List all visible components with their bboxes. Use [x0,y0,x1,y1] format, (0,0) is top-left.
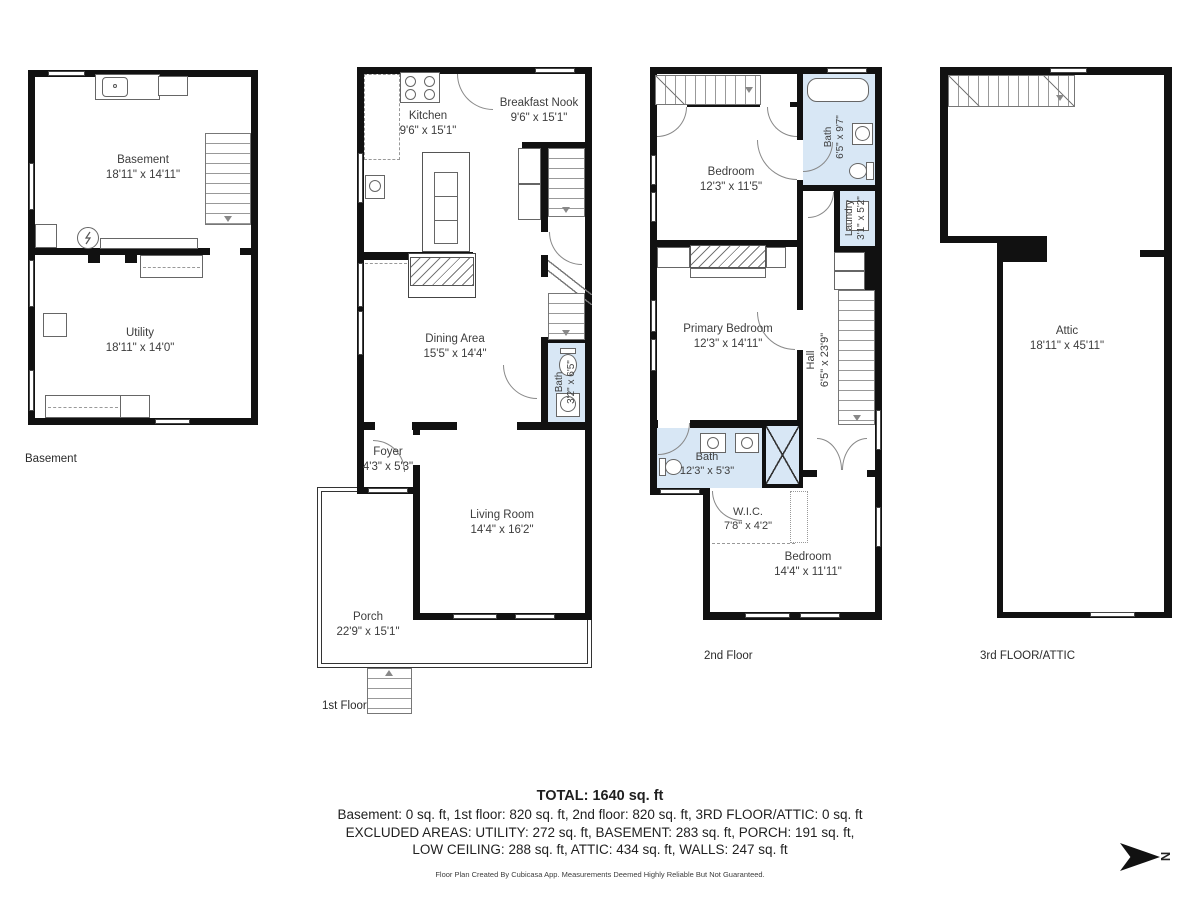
stairs-icon [205,133,251,225]
wall [251,70,258,425]
burner-icon [405,76,416,87]
room-label-basement: Basement 18'11" x 14'11" [106,153,180,183]
room-name: W.I.C. [724,505,772,519]
stairs-direction-arrow-icon [224,216,232,222]
stairs-direction-arrow-icon [745,87,753,93]
area-by-floor: Basement: 0 sq. ft, 1st floor: 820 sq. f… [0,806,1200,824]
room-name: Bedroom [774,550,842,565]
room-dims: 3'2" x 6'5" [566,360,578,404]
water-heater-icon [77,227,99,249]
room-label-foyer: Foyer 4'3" x 5'3" [363,445,413,475]
wall [541,343,548,422]
basement-plan: Basement 18'11" x 14'11" Utility 18'11" … [28,70,258,425]
second-floor-plan: Bath 6'5" x 9'7" Laundry 3'1" x 5'2" [650,67,882,620]
wall [1140,250,1172,257]
wall [703,612,882,620]
bathtub-icon [807,78,869,102]
stairs-direction-arrow-icon [562,207,570,213]
room-dims: 9'6" x 15'1" [400,124,457,139]
burner-icon [405,89,416,100]
wall [650,420,658,428]
wall [28,418,258,425]
room-dims: 6'5" x 9'7" [835,115,847,159]
wall [650,67,657,494]
window [155,419,190,424]
window [651,192,656,222]
area-summary: TOTAL: 1640 sq. ft Basement: 0 sq. ft, 1… [0,786,1200,879]
closet-icon [790,491,808,543]
window [358,153,363,203]
stairs-direction-arrow-icon [1056,95,1064,101]
room-name: Living Room [470,508,534,523]
wall [585,67,592,620]
floor-label-1st-floor: 1st Floor [322,700,367,712]
door-arc-icon [503,365,537,399]
stairs-direction-arrow-icon [562,330,570,336]
floor-fill [413,480,592,620]
toilet-tank-icon [866,162,874,180]
wall [125,255,137,263]
wall [240,248,251,255]
room-dims: 18'11" x 14'0" [106,341,175,356]
low-ceiling-line [712,543,795,544]
north-label: N [1158,852,1173,861]
wall [940,67,948,243]
door-arc-icon [657,107,687,137]
burner-icon [424,76,435,87]
floor-plan-sheet: Basement 18'11" x 14'11" Utility 18'11" … [0,0,1200,900]
wall [35,248,210,255]
room-dims: 18'11" x 14'11" [106,168,180,183]
understair-line [1043,75,1075,107]
window [1050,68,1087,73]
room-dims: 18'11" x 45'11" [1030,339,1104,354]
total-area: TOTAL: 1640 sq. ft [0,786,1200,806]
window [29,163,34,210]
door-arc-icon [842,438,867,470]
room-label-bedroom1: Bedroom 12'3" x 11'5" [700,165,762,195]
shelf-icon [690,268,766,278]
sink-icon [707,437,719,449]
room-name: Foyer [363,445,413,460]
window [876,507,881,547]
counter-icon [364,74,400,160]
wall [867,470,882,477]
window [515,614,555,619]
room-label-kitchen: Kitchen 9'6" x 15'1" [400,109,457,139]
window [651,339,656,371]
toilet-icon [849,163,867,179]
room-label-porch: Porch 22'9" x 15'1" [336,610,399,640]
window [745,613,790,618]
room-name: Dining Area [423,332,486,347]
sink-drain-icon [113,84,117,88]
room-dims: 14'4" x 11'11" [774,565,842,580]
door-arc-icon [457,74,493,110]
room-dims: 12'3" x 14'11" [683,337,772,352]
island-line [435,220,457,221]
stairs-icon [838,290,875,425]
window [453,614,497,619]
room-name: Breakfast Nook [500,96,579,111]
window [651,300,656,332]
stairs-direction-arrow-icon [853,415,861,421]
understair-line [948,75,980,107]
room-label-bath1: Bath 3'2" x 6'5" [554,360,578,404]
wall [797,180,803,310]
sink-icon [741,437,753,449]
room-name: Basement [106,153,180,168]
sink-icon [855,126,870,141]
wall [703,488,710,620]
room-dims: 6'5" x 23'9" [818,333,832,387]
room-dims: 12'3" x 5'3" [680,464,734,478]
room-label-bath2: Bath 6'5" x 9'7" [823,115,847,159]
door-arc-icon [757,140,797,180]
bench-line [48,407,118,408]
island-line [435,196,457,197]
window [651,155,656,185]
dresser-icon [140,255,203,278]
burner-icon [424,89,435,100]
window [876,410,881,450]
cabinet-icon [43,313,67,337]
shelf-icon [834,252,865,271]
wall [357,422,375,430]
room-label-breakfast-nook: Breakfast Nook 9'6" x 15'1" [500,96,579,126]
wall [997,612,1172,618]
room-name: Attic [1030,324,1104,339]
room-dims: 4'3" x 5'3" [363,460,413,475]
window [535,68,575,73]
closet-icon [518,148,541,184]
room-dims: 22'9" x 15'1" [336,625,399,640]
room-name: Bath [680,450,734,464]
room-dims: 12'3" x 11'5" [700,180,762,195]
excluded-areas-2: LOW CEILING: 288 sq. ft, ATTIC: 434 sq. … [0,841,1200,859]
window [827,68,867,73]
room-label-wic: W.I.C. 7'8" x 4'2" [724,505,772,533]
room-label-hall: Hall 6'5" x 23'9" [804,333,832,387]
window [29,260,34,307]
wall [1164,67,1172,618]
understair-line [655,75,685,105]
counter-edge-line [365,263,407,264]
room-dims: 15'5" x 14'4" [423,347,486,362]
cabinet-icon [35,224,57,248]
wall [517,422,592,430]
bench-divider [120,396,121,417]
room-name: Hall [804,333,818,387]
window [358,311,363,355]
room-name: Bedroom [700,165,762,180]
excluded-areas-1: EXCLUDED AREAS: UTILITY: 272 sq. ft, BAS… [0,824,1200,842]
door-arc-icon [817,438,842,470]
counter-icon [100,238,198,249]
wall [88,255,100,263]
island-cabinet-icon [434,172,458,244]
room-dims: 3'1" x 5'2" [856,196,868,240]
window [29,370,34,411]
window [1090,612,1135,617]
stove-icon [400,72,440,103]
room-dims: 9'6" x 15'1" [500,111,579,126]
window [368,488,408,493]
shower-icon [762,422,803,488]
room-name: Kitchen [400,109,457,124]
floor-label-basement: Basement [25,453,77,465]
room-label-dining-area: Dining Area 15'5" x 14'4" [423,332,486,362]
room-label-utility: Utility 18'11" x 14'0" [106,326,175,356]
closet-icon [766,247,786,268]
room-dims: 14'4" x 16'2" [470,523,534,538]
room-label-living-room: Living Room 14'4" x 16'2" [470,508,534,538]
room-name: Primary Bedroom [683,322,772,337]
room-label-laundry: Laundry 3'1" x 5'2" [844,196,868,240]
window [800,613,840,618]
wall [997,237,1047,262]
wall [413,465,420,620]
dresser-line [143,267,200,268]
door-arc-icon [808,192,834,218]
room-name: Utility [106,326,175,341]
wall [997,262,1003,618]
floor-label-attic: 3rd FLOOR/ATTIC [980,650,1075,662]
room-label-bedroom2: Bedroom 14'4" x 11'11" [774,550,842,580]
room-name: Laundry [844,196,856,240]
room-label-primary-bedroom: Primary Bedroom 12'3" x 14'11" [683,322,772,352]
closet-icon [657,247,690,268]
cabinet-icon [158,76,188,96]
attic-plan: Attic 18'11" x 45'11" [940,67,1172,618]
first-floor-plan: Bath 3'2" x 6'5" [317,67,592,715]
wall [413,613,592,620]
room-label-attic: Attic 18'11" x 45'11" [1030,324,1104,354]
steps-direction-arrow-icon [385,670,393,676]
wall [803,470,817,477]
wall [541,255,548,277]
wall [412,422,457,430]
window [660,489,700,494]
floor-label-2nd-floor: 2nd Floor [704,650,753,662]
low-ceiling-hatch-icon [690,245,766,268]
closet-icon [518,184,541,220]
room-dims: 7'8" x 4'2" [724,519,772,533]
disclaimer-text: Floor Plan Created By Cubicasa App. Meas… [0,870,1200,879]
window [358,263,363,307]
bench-icon [45,395,150,418]
low-ceiling-hatch-icon [410,257,474,286]
window [48,71,85,76]
wall [541,142,548,232]
room-name: Bath [823,115,835,159]
sink-icon [369,180,381,192]
room-name: Porch [336,610,399,625]
shelf-icon [834,271,865,290]
room-label-bath3: Bath 12'3" x 5'3" [680,450,734,478]
door-arc-icon [767,107,797,137]
room-name: Bath [554,360,566,404]
